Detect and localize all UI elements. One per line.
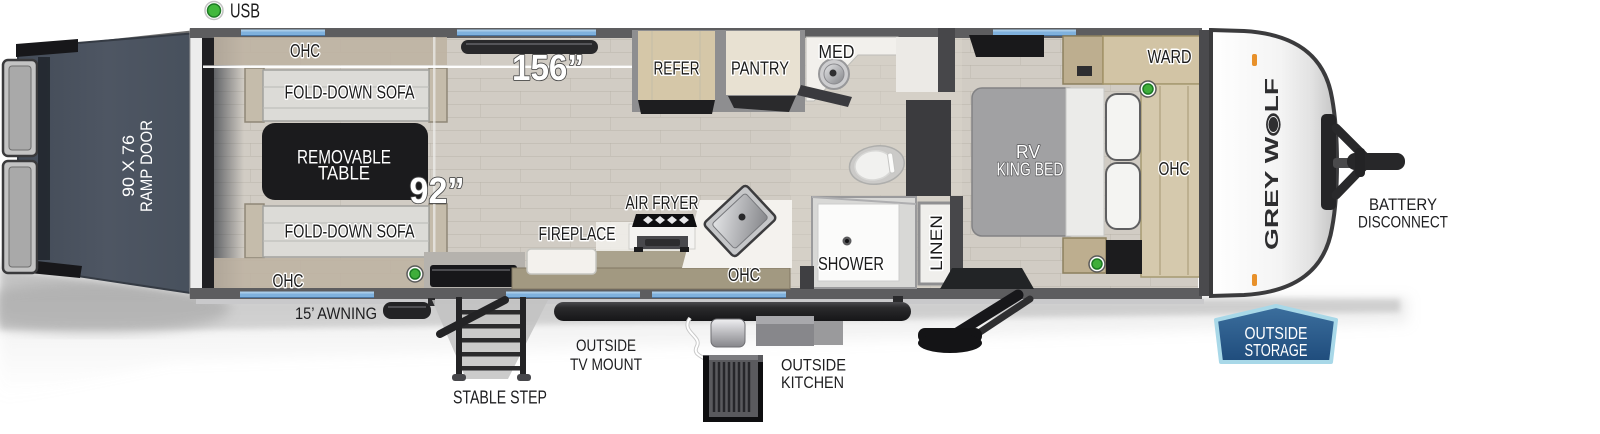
svg-text:RAMP DOOR: RAMP DOOR: [137, 120, 156, 212]
svg-text:90 X 76: 90 X 76: [119, 135, 138, 197]
svg-text:OUTSIDE: OUTSIDE: [781, 356, 846, 375]
svg-text:USB: USB: [230, 1, 260, 23]
svg-text:OHC: OHC: [273, 270, 304, 291]
svg-text:15’ AWNING: 15’ AWNING: [295, 304, 377, 323]
svg-text:FIREPLACE: FIREPLACE: [539, 223, 616, 244]
svg-text:MED: MED: [819, 41, 855, 62]
svg-text:KING BED: KING BED: [997, 159, 1064, 180]
svg-text:TV MOUNT: TV MOUNT: [570, 355, 642, 374]
svg-text:WARD: WARD: [1148, 46, 1192, 67]
svg-text:LINEN: LINEN: [927, 215, 946, 271]
svg-text:PANTRY: PANTRY: [731, 58, 789, 79]
svg-text:STABLE STEP: STABLE STEP: [453, 387, 547, 408]
svg-text:STORAGE: STORAGE: [1245, 340, 1308, 360]
svg-text:OUTSIDE: OUTSIDE: [576, 336, 636, 355]
svg-text:TABLE: TABLE: [318, 164, 370, 185]
svg-text:OHC: OHC: [728, 264, 760, 285]
svg-text:REFER: REFER: [654, 58, 700, 79]
svg-text:OHC: OHC: [290, 40, 320, 61]
svg-text:DISCONNECT: DISCONNECT: [1358, 214, 1448, 232]
svg-text:OHC: OHC: [1159, 158, 1190, 179]
svg-text:AIR FRYER: AIR FRYER: [626, 192, 699, 213]
svg-text:GREY W◉LF: GREY W◉LF: [1262, 78, 1282, 250]
svg-text:BATTERY: BATTERY: [1369, 196, 1437, 214]
svg-text:92”: 92”: [410, 170, 465, 211]
svg-text:FOLD-DOWN SOFA: FOLD-DOWN SOFA: [285, 221, 416, 242]
svg-text:SHOWER: SHOWER: [818, 253, 884, 274]
svg-text:FOLD-DOWN SOFA: FOLD-DOWN SOFA: [285, 82, 416, 103]
svg-text:KITCHEN: KITCHEN: [781, 373, 844, 392]
